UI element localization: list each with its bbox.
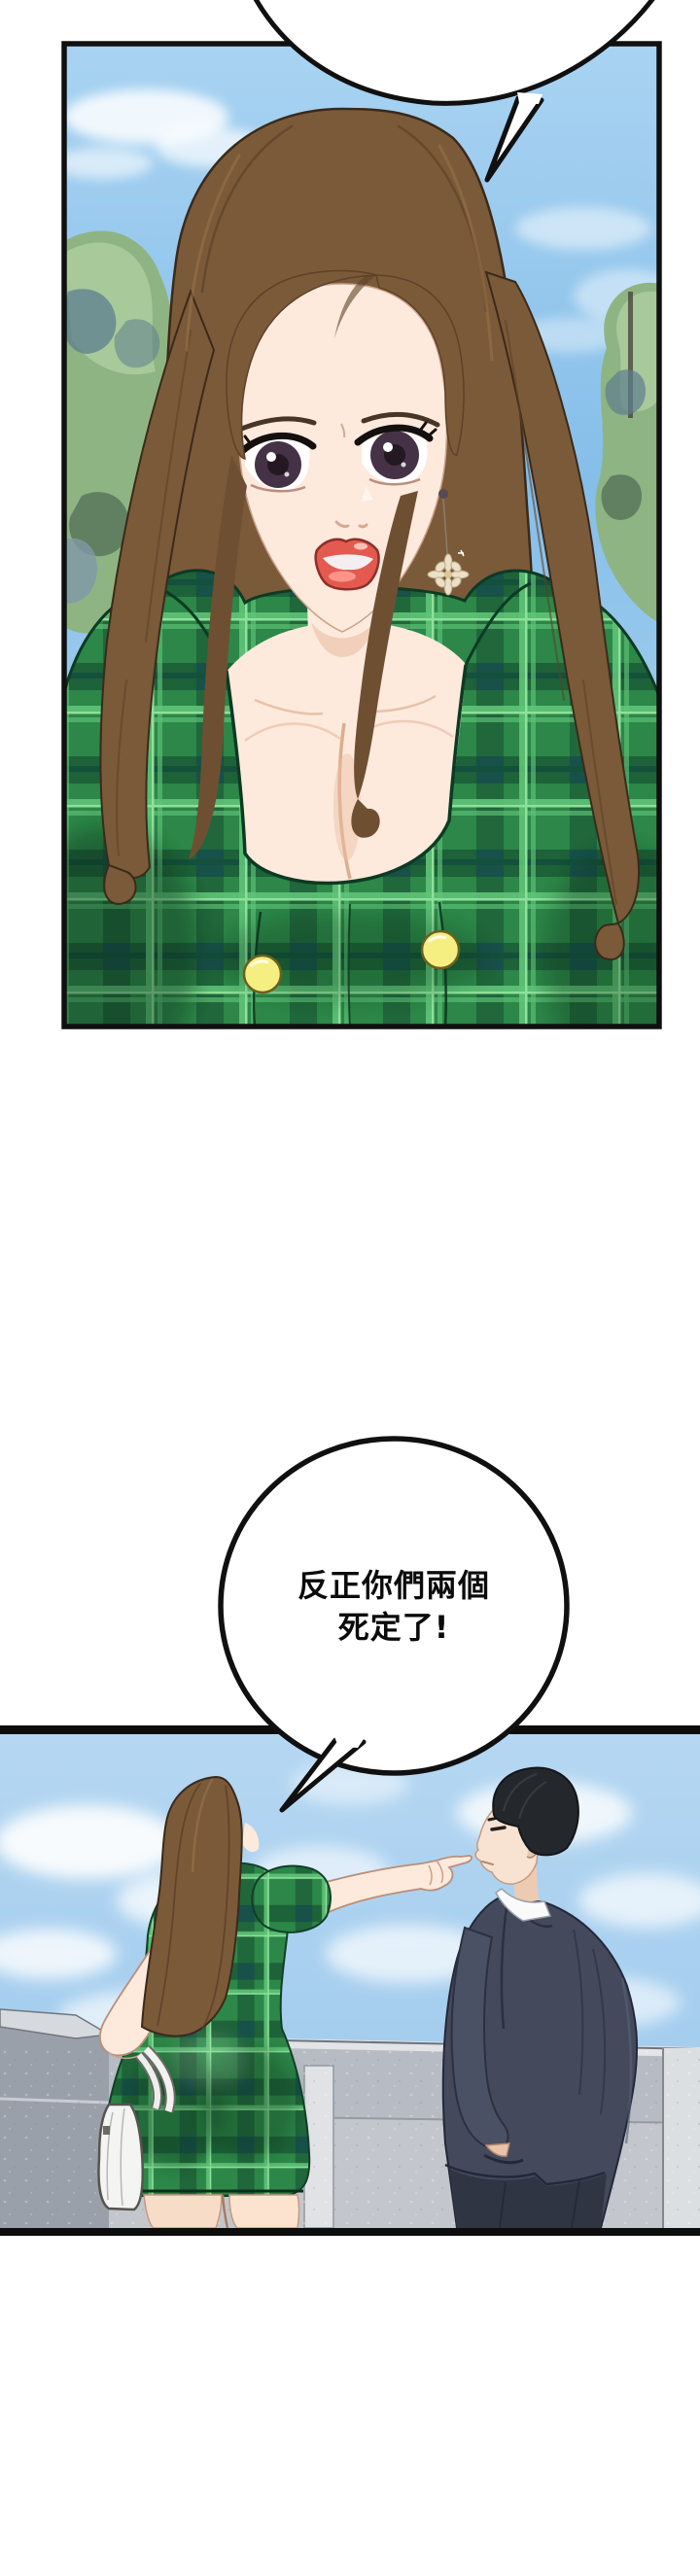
speech-text-line1: 反正你們兩個 — [221, 1565, 567, 1607]
speech-text: 反正你們兩個 死定了! — [221, 1565, 567, 1649]
panel-1 — [0, 0, 700, 1030]
woman-sleeve — [252, 1866, 331, 1932]
woman-lips — [316, 540, 379, 589]
panel2-border-bottom — [0, 2228, 700, 2236]
comic-page: 反正你們兩個 死定了! — [0, 0, 700, 2576]
speech-text-line2: 死定了! — [221, 1607, 567, 1649]
